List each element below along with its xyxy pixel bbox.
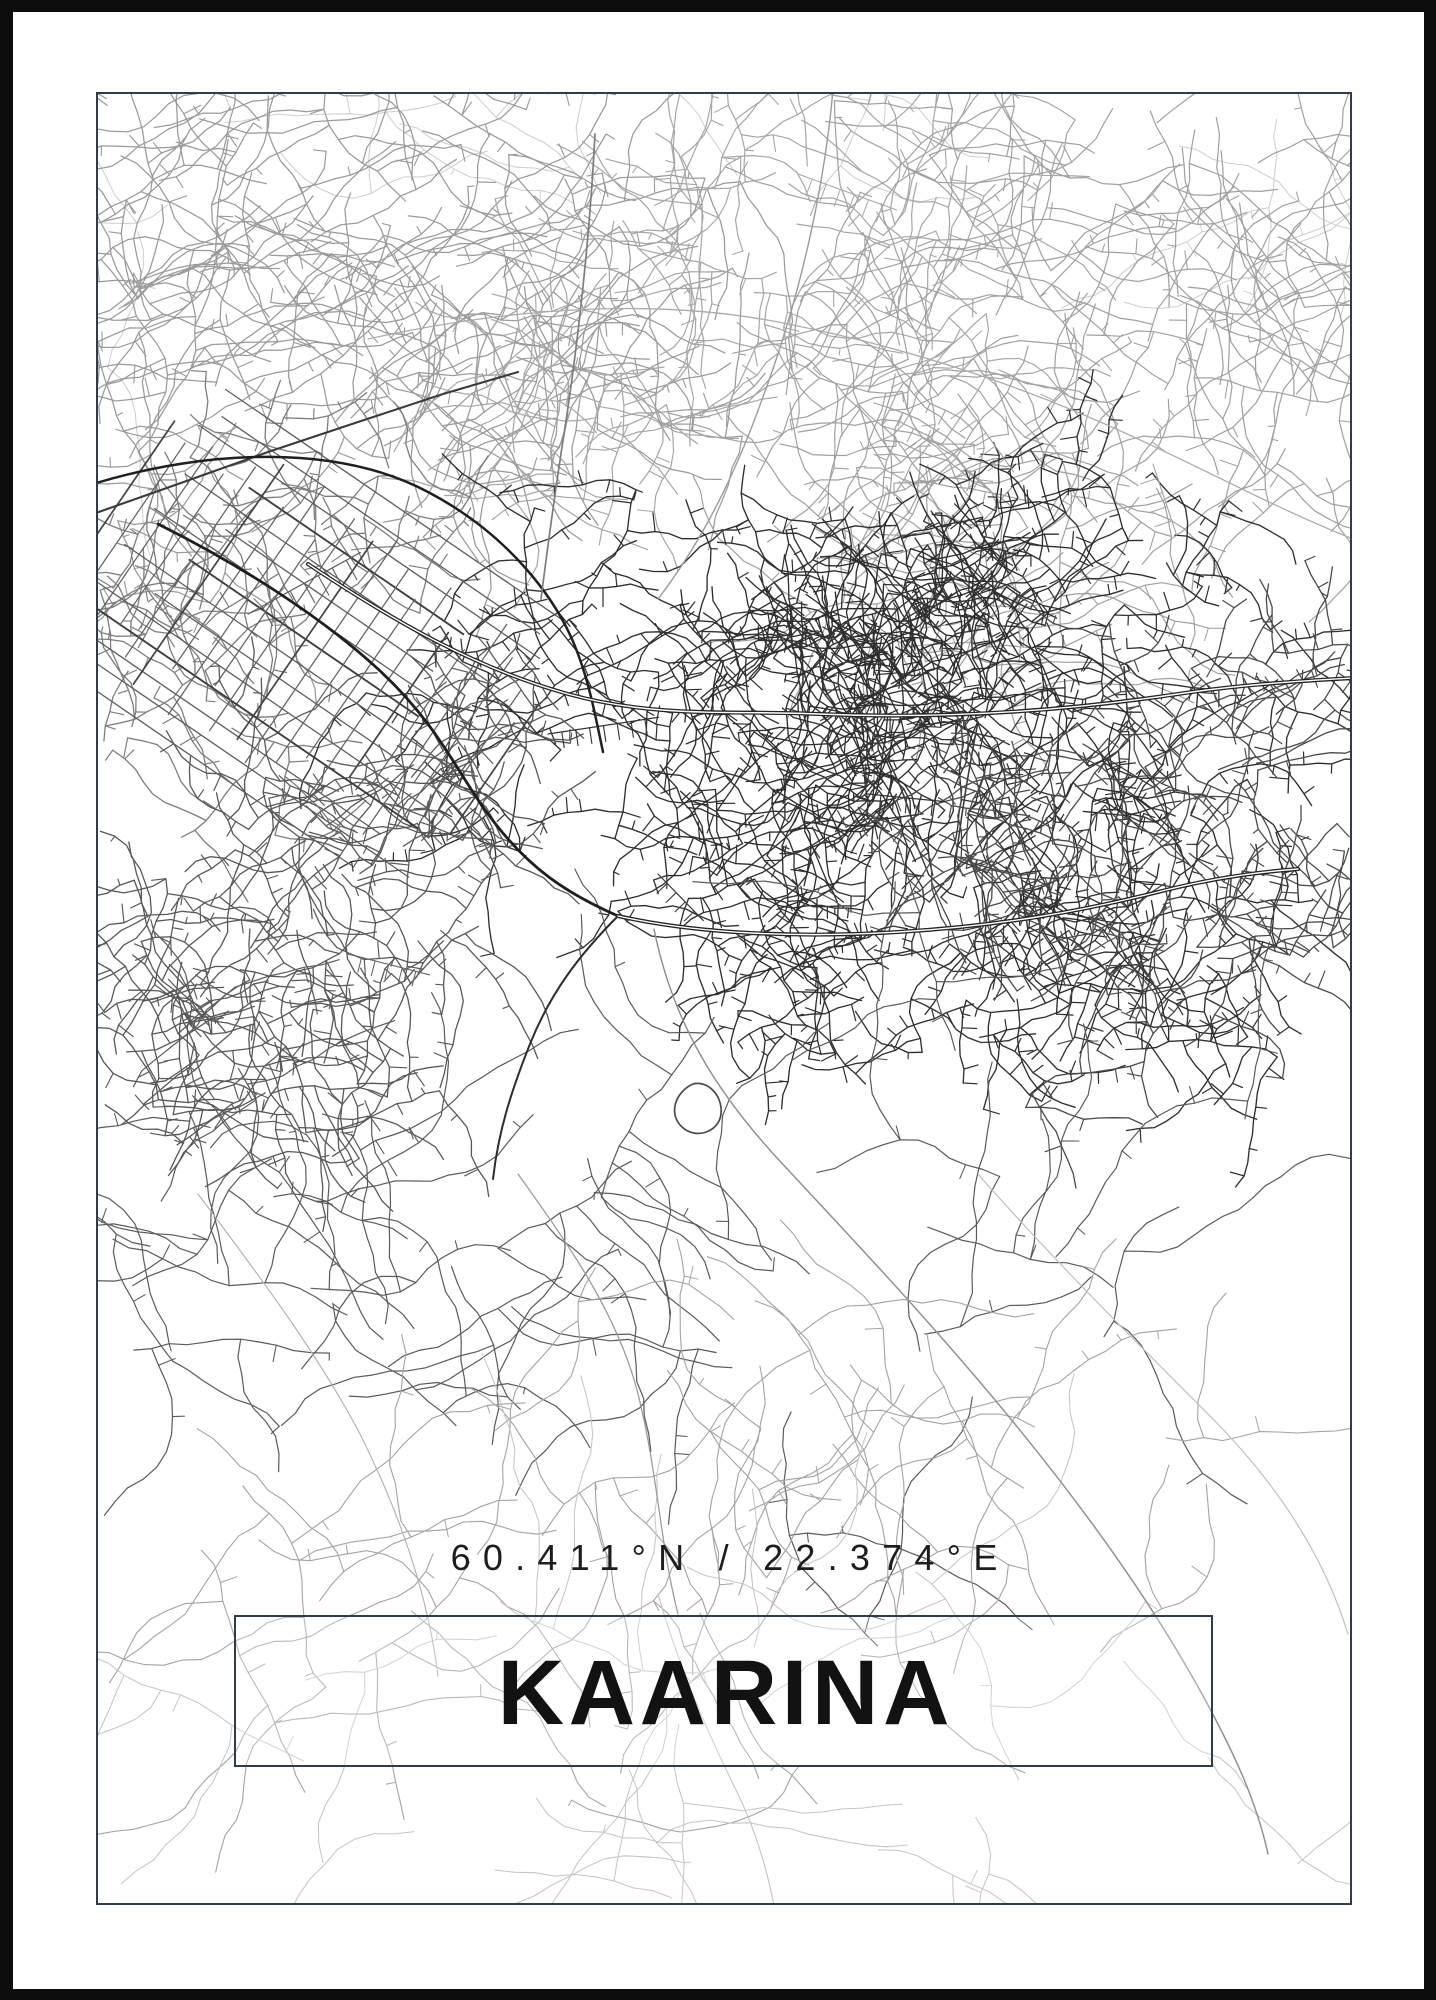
map-area: 60.411°N / 22.374°E KAARINA: [96, 92, 1352, 1905]
poster-matte: 60.411°N / 22.374°E KAARINA: [13, 12, 1424, 1989]
poster-frame: 60.411°N / 22.374°E KAARINA: [0, 0, 1436, 2000]
title-label: KAARINA: [493, 1647, 954, 1739]
title-box: KAARINA: [234, 1615, 1213, 1767]
coordinates-label: 60.411°N / 22.374°E: [98, 1532, 1350, 1584]
